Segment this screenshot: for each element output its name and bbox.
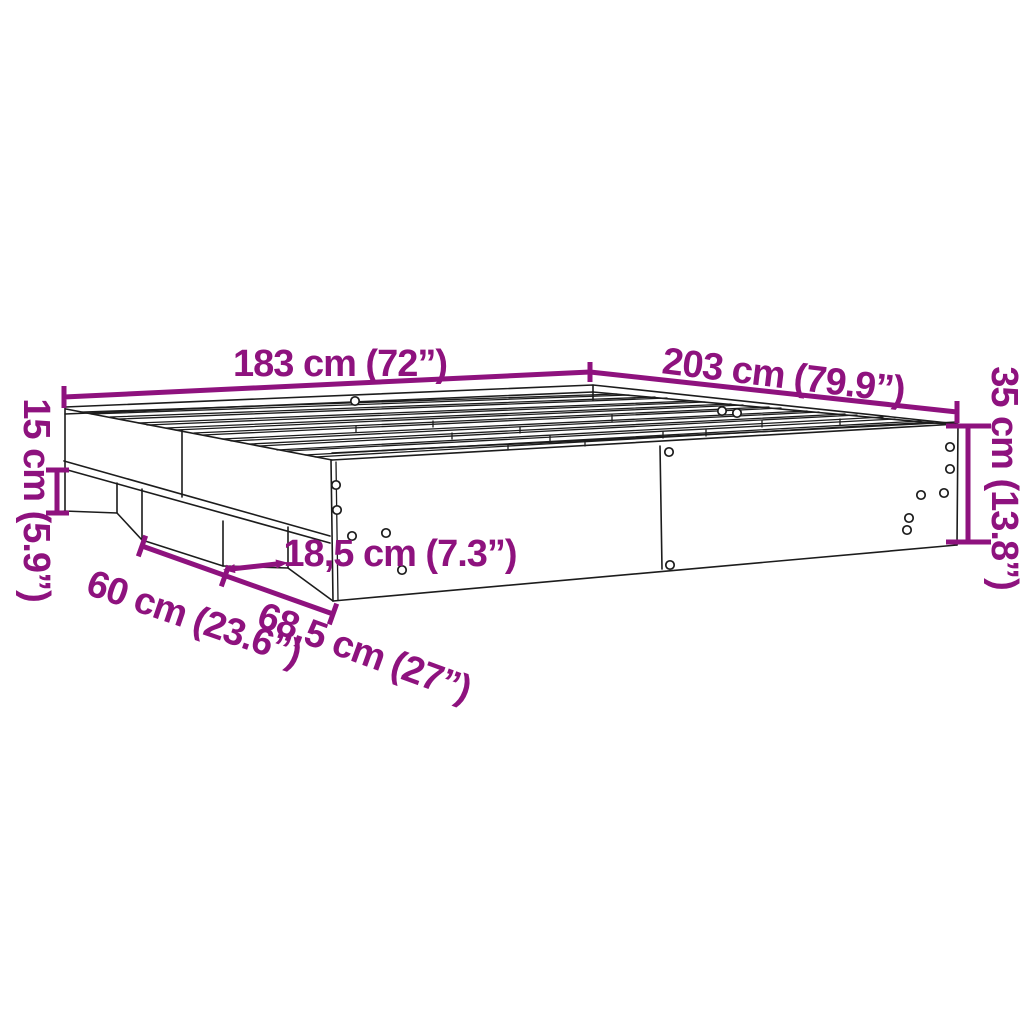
height-dim-label: 35 cm (13.8”) [983,366,1024,590]
dimension-base-height: 15 cm (5.9”) [15,398,69,601]
dimension-annotations: 183 cm (72”) 203 cm (79.9”) 35 cm (13.8”… [15,340,1024,710]
notch-1 [117,489,142,540]
side-rail-band-bottom [64,469,330,543]
front-rail-seam [660,446,662,569]
corner-foot [64,483,117,513]
dimension-width: 183 cm (72”) [64,343,590,408]
dimension-notch-width: 18,5 cm (7.3”) [223,533,517,575]
diagram-canvas: 183 cm (72”) 203 cm (79.9”) 35 cm (13.8”… [0,0,1024,1024]
front-rail-right-edge [957,424,958,545]
base-height-dim-label: 15 cm (5.9”) [15,398,57,601]
side-rail-band-top [64,461,330,536]
dimension-length: 203 cm (79.9”) [590,340,957,423]
front-rail-left-edge [331,460,333,601]
width-dim-label: 183 cm (72”) [233,343,447,385]
bed-frame-dimension-diagram: 183 cm (72”) 203 cm (79.9”) 35 cm (13.8”… [0,0,1024,1024]
notch-width-dim-label: 18,5 cm (7.3”) [283,533,516,575]
